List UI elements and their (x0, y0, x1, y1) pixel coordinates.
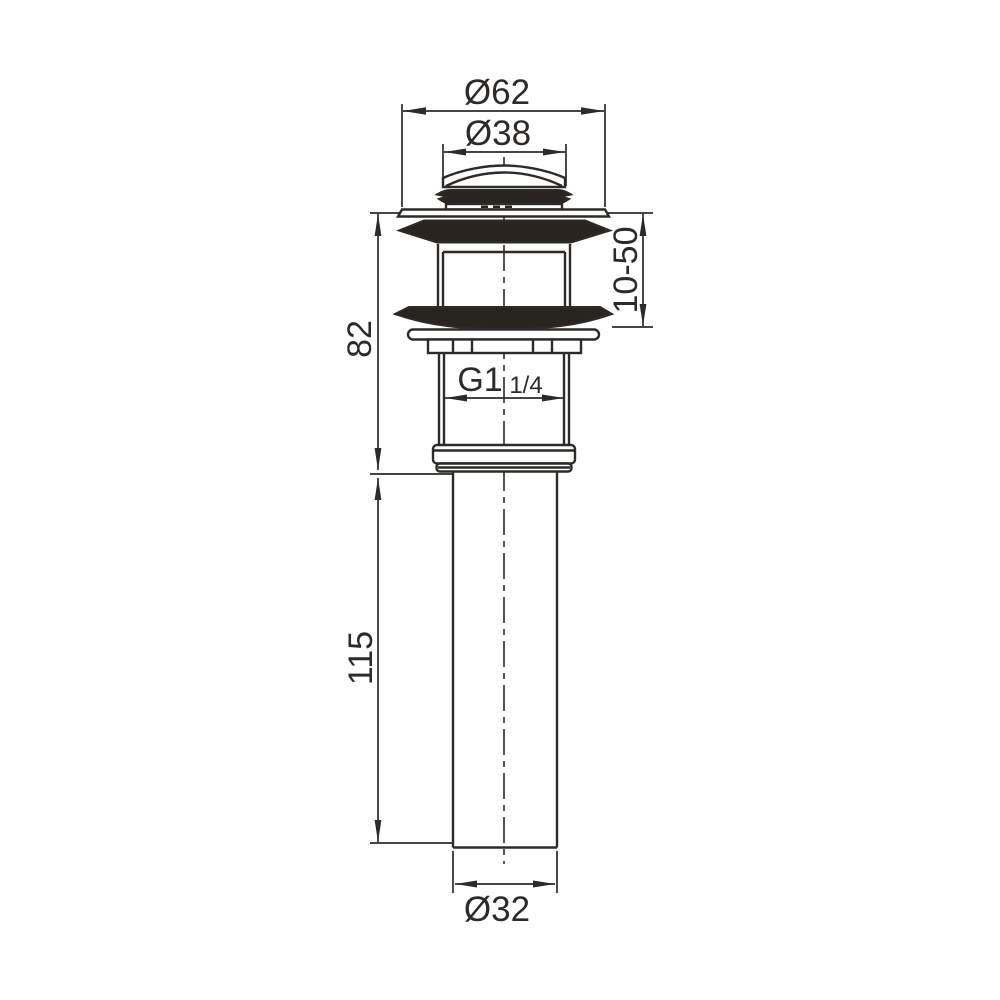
d32-label: Ø32 (464, 890, 530, 929)
d38-label: Ø38 (465, 114, 531, 153)
h82-label: 82 (341, 320, 379, 358)
friction-washer (408, 330, 599, 340)
d62-arrow-right (581, 107, 604, 114)
tailpipe (453, 472, 557, 848)
top-gasket (399, 221, 610, 243)
nut-body (428, 340, 581, 354)
popup-cap (398, 166, 609, 217)
technical-drawing-canvas: Ø62 Ø38 82 115 (0, 0, 1000, 1000)
range-label: 10-50 (607, 227, 645, 314)
thread-arrow-right (542, 395, 564, 402)
cap-rubber-seal (437, 190, 571, 204)
d38-arrow-right (543, 149, 565, 156)
cap-flange (398, 210, 609, 217)
thread-fraction-label: 1/4 (509, 372, 542, 399)
bottom-collar (433, 445, 575, 472)
slotted-nut (428, 340, 581, 354)
d62-label: Ø62 (464, 73, 530, 112)
strip-tick (481, 206, 488, 208)
cap-dome-outline (443, 166, 565, 188)
technical-drawing-page: Ø62 Ø38 82 115 (0, 0, 1000, 1000)
dimension-clamping-range: 10-50 (607, 213, 653, 327)
h115-arrow-bottom (375, 820, 382, 842)
strip-tick (505, 206, 512, 208)
thread-label: G1 (457, 361, 502, 399)
h115-label: 115 (342, 631, 380, 685)
drawing-root: Ø62 Ø38 82 115 (341, 73, 653, 929)
strip-tick (493, 206, 500, 208)
h115-arrow-top (375, 478, 382, 500)
cap-strip-ticks (481, 206, 512, 208)
d38-arrow-left (444, 149, 466, 156)
d32-arrow-right (533, 881, 555, 888)
h82-arrow-bottom (375, 448, 382, 470)
d62-arrow-left (403, 107, 426, 114)
collar-upper-band (433, 445, 575, 464)
dimension-tailpipe-diameter: Ø32 (453, 851, 557, 929)
d32-arrow-left (455, 881, 477, 888)
dimension-tailpipe-length: 115 (342, 478, 453, 843)
bottom-gasket (395, 307, 612, 329)
h82-arrow-top (375, 214, 382, 236)
